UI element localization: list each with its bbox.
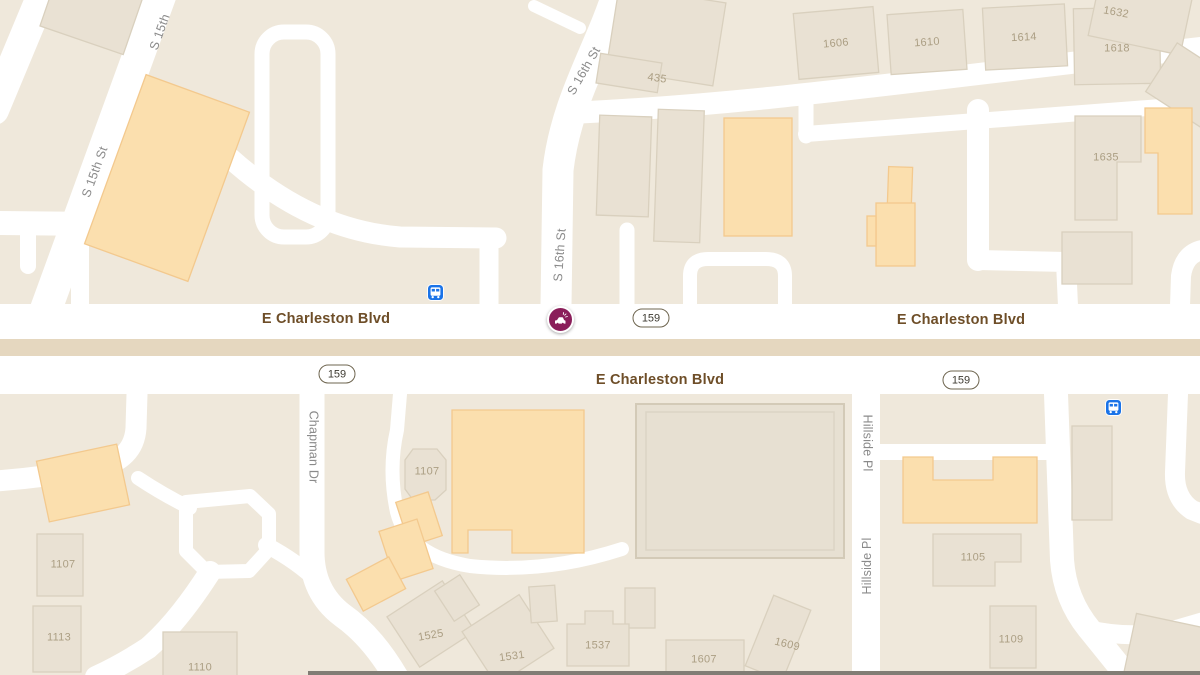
building-number: 1610	[914, 37, 940, 50]
building-number: 1107	[415, 467, 440, 478]
building-number: 1110	[188, 663, 212, 674]
building-commercial	[724, 118, 792, 236]
vehicle-incident-glyph	[552, 311, 569, 328]
building	[529, 585, 557, 623]
bus-stop-icon[interactable]	[1106, 400, 1121, 415]
street-label-chapman-dr: Chapman Dr	[307, 411, 320, 484]
building	[596, 115, 651, 217]
building	[654, 109, 705, 243]
road-u-loop	[690, 259, 785, 306]
route-shield-number: 159	[642, 312, 660, 324]
building-number: 1107	[51, 560, 76, 571]
bus-stop-icon[interactable]	[428, 285, 443, 300]
map-base-layer	[0, 0, 1200, 675]
bus-glyph	[428, 285, 443, 300]
road-label-charleston-center: E Charleston Blvd	[596, 373, 724, 388]
road-right-elbow	[978, 260, 1068, 306]
road-label-charleston-west: E Charleston Blvd	[262, 312, 390, 327]
building-number: 1635	[1093, 153, 1119, 164]
route-shield-159: 159	[319, 365, 356, 384]
charleston-median	[0, 339, 1200, 356]
building-1537	[567, 611, 629, 666]
route-shield-number: 159	[952, 374, 970, 386]
road-corner-nw	[0, 0, 44, 110]
road-s16th-stub	[534, 6, 580, 28]
route-shield-number: 159	[328, 368, 346, 380]
bus-glyph	[1106, 400, 1121, 415]
bottom-strip	[308, 671, 1200, 675]
road-right-edge	[1180, 250, 1200, 306]
building	[1072, 426, 1112, 520]
road-label-charleston-east: E Charleston Blvd	[897, 313, 1025, 328]
building-commercial	[867, 216, 876, 246]
building	[1062, 232, 1132, 284]
map-canvas[interactable]: S 15th S 15th St S 16th St S 16th St Cha…	[0, 0, 1200, 675]
building-number: 1618	[1104, 44, 1130, 55]
building-number: 1105	[961, 553, 986, 564]
route-shield-159: 159	[633, 309, 670, 328]
building-commercial	[452, 410, 584, 553]
road-rb-edge	[1175, 394, 1200, 514]
street-label-hillside-pl-lower: Hillside Pl	[861, 537, 874, 594]
building-commercial	[903, 457, 1037, 523]
building-number: 1614	[1011, 32, 1037, 44]
traffic-incident-icon[interactable]	[547, 306, 574, 333]
building-commercial	[876, 203, 915, 266]
building-commercial	[36, 444, 129, 522]
building-commercial	[1145, 108, 1192, 214]
building-number: 1113	[47, 633, 71, 644]
road-culdesac-loop	[186, 496, 269, 572]
building-large-lot	[636, 404, 844, 558]
street-label-hillside-pl-upper: Hillside Pl	[861, 414, 874, 471]
building-number: 1537	[585, 641, 611, 652]
route-shield-159: 159	[943, 371, 980, 390]
building-number: 1607	[691, 655, 717, 666]
road-culdesac-stub	[138, 478, 190, 508]
building-1635	[1075, 116, 1141, 220]
building-commercial	[887, 167, 912, 206]
building-number: 1606	[823, 37, 850, 50]
building	[625, 588, 655, 628]
building-number: 1109	[999, 635, 1024, 646]
